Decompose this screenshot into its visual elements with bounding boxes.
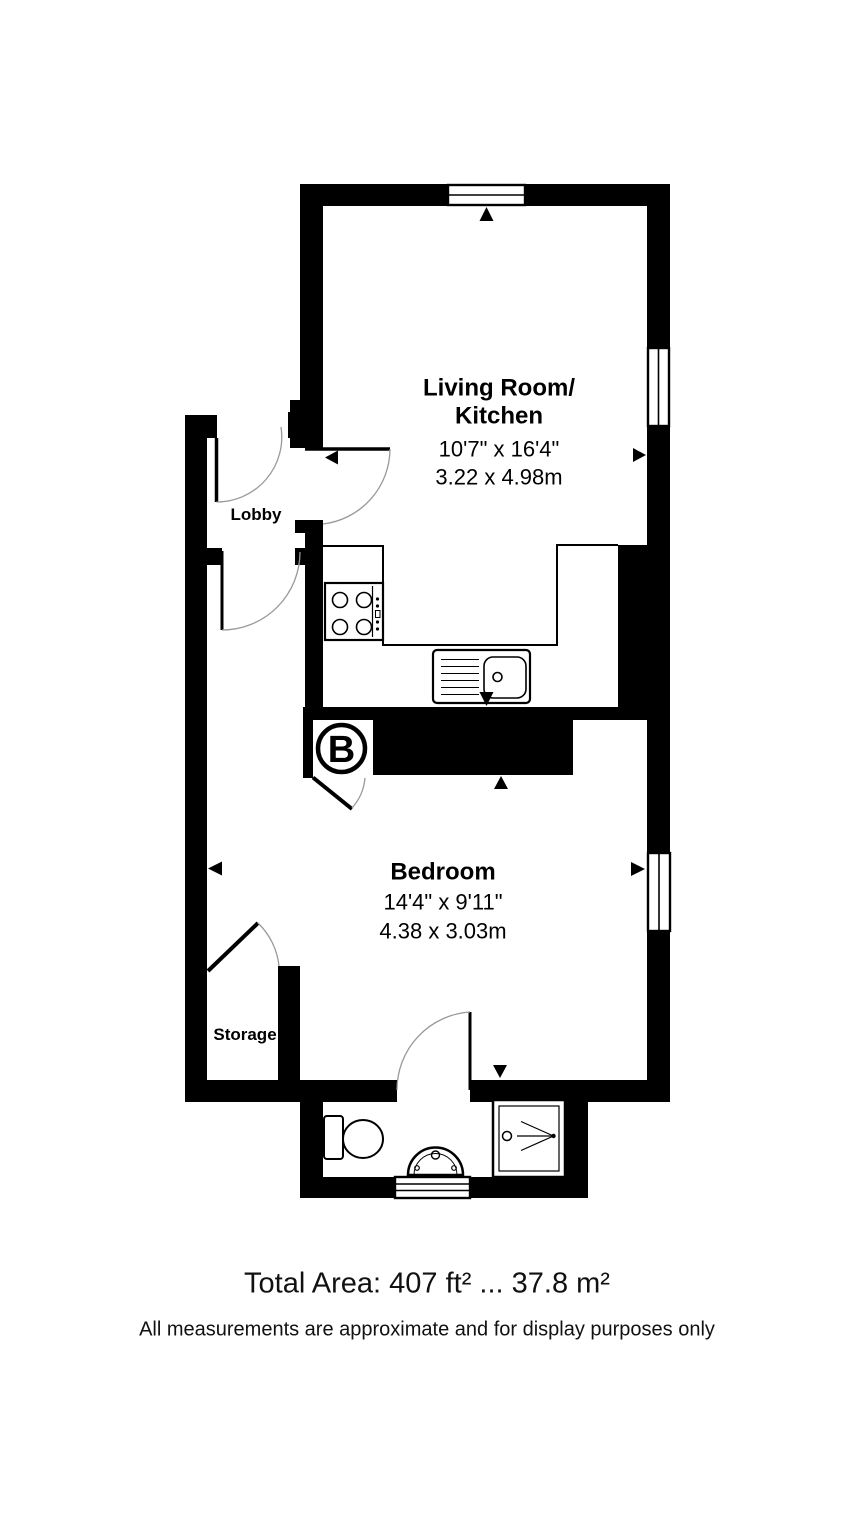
- wall-right-exterior-mid: [647, 426, 670, 855]
- disclaimer-text: All measurements are approximate and for…: [139, 1319, 715, 1342]
- door-lobby-entrance: [217, 427, 282, 502]
- wall-lobby-top-right: [288, 412, 300, 438]
- bedroom-dim-metric: 4.38 x 3.03m: [379, 917, 506, 945]
- arrow-left-living: [325, 451, 338, 465]
- bedroom-label: Bedroom: [390, 859, 495, 888]
- door-bathroom: [397, 1012, 470, 1090]
- arrow-down-bedroom: [493, 1065, 507, 1078]
- basin-icon: [408, 1148, 463, 1176]
- arrow-right-bedroom: [631, 862, 645, 876]
- window-bedroom-right: [648, 853, 670, 931]
- bedroom-dim-imperial: 14'4" x 9'11": [383, 888, 502, 916]
- wall-kitchen-right-thick: [618, 545, 647, 720]
- wall-entry-mass: [373, 720, 573, 775]
- living-room-label-line2: Kitchen: [455, 403, 543, 432]
- window-bathroom-bottom: [395, 1177, 470, 1198]
- wall-bedroom-bottom-left: [185, 1080, 397, 1102]
- storage-label: Storage: [213, 1025, 276, 1045]
- door-lobby-to-corridor: [222, 551, 300, 630]
- living-room-dim-metric: 3.22 x 4.98m: [435, 463, 562, 491]
- floorplan-page: B: [0, 0, 854, 1536]
- walls: [185, 184, 670, 1198]
- door-living-room: [305, 449, 390, 524]
- arrow-up-bedroom: [494, 776, 508, 789]
- arrow-left-bedroom: [208, 862, 222, 876]
- living-room-label-line1: Living Room/: [423, 375, 575, 404]
- floorplan-drawing: B: [0, 0, 854, 1536]
- door-entry-b: [313, 778, 365, 810]
- arrow-right-living: [633, 448, 646, 462]
- hob-icon: [325, 583, 383, 640]
- wall-doorstub-kitchen: [295, 520, 323, 533]
- entry-marker-letter: B: [328, 729, 355, 771]
- wall-entry-left-strip: [303, 720, 313, 778]
- wall-left-exterior: [185, 415, 207, 1102]
- wall-bathroom-bottom-left: [300, 1177, 395, 1198]
- window-living-top: [448, 185, 525, 205]
- wall-bathroom-right: [565, 1093, 588, 1198]
- wall-right-exterior-upper: [647, 184, 670, 348]
- wall-lobby-bottom-left-stub: [207, 548, 222, 565]
- total-area-text: Total Area: 407 ft² ... 37.8 m²: [244, 1268, 610, 1301]
- direction-arrows: [208, 207, 646, 1078]
- entry-marker-b: B: [313, 722, 373, 777]
- lobby-label: Lobby: [231, 505, 282, 525]
- shower-icon: [493, 1100, 565, 1177]
- toilet-icon: [324, 1116, 383, 1159]
- wall-kitchen-bottom: [303, 707, 670, 720]
- living-room-dim-imperial: 10'7" x 16'4": [439, 435, 560, 463]
- wall-living-left-upper: [300, 184, 323, 448]
- arrow-up-top-window: [480, 207, 494, 221]
- window-living-right: [648, 348, 669, 426]
- door-storage: [208, 923, 279, 971]
- wall-right-exterior-lower: [647, 932, 670, 1102]
